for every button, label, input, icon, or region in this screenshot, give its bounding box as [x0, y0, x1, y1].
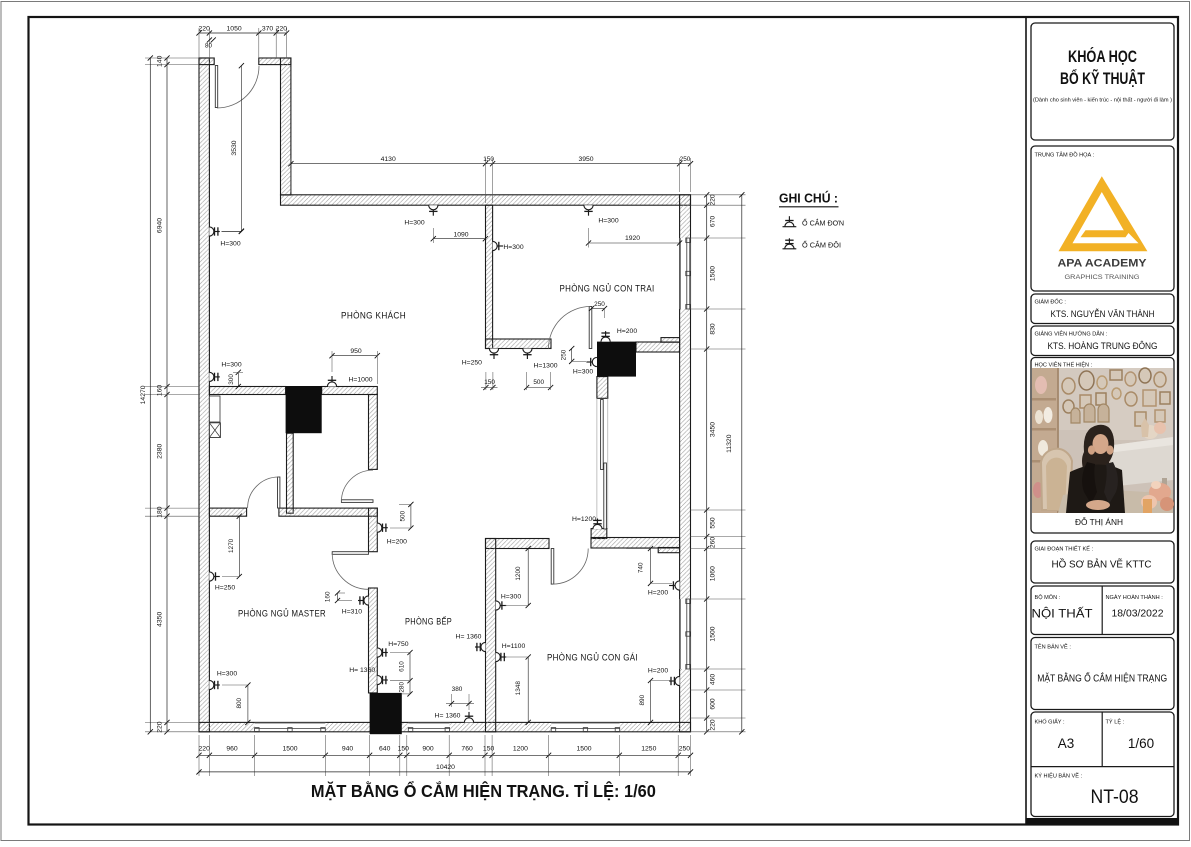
svg-text:220: 220 — [276, 26, 288, 33]
svg-text:KTS. HOÀNG TRUNG ĐÔNG: KTS. HOÀNG TRUNG ĐÔNG — [1048, 341, 1158, 351]
svg-text:1250: 1250 — [641, 746, 656, 753]
svg-text:H=200: H=200 — [387, 539, 407, 546]
svg-text:H=300: H=300 — [598, 218, 618, 225]
svg-text:830: 830 — [710, 323, 717, 335]
svg-text:H=300: H=300 — [220, 241, 240, 248]
svg-text:3450: 3450 — [710, 422, 717, 437]
svg-text:280: 280 — [399, 682, 406, 693]
svg-text:1/60: 1/60 — [1128, 736, 1154, 751]
svg-text:550: 550 — [710, 517, 717, 529]
svg-text:Ổ CẮM ĐƠN: Ổ CẮM ĐƠN — [802, 218, 844, 227]
svg-text:960: 960 — [226, 746, 238, 753]
svg-text:MẶT BẰNG Ổ CẮM HIỆN TRẠNG: MẶT BẰNG Ổ CẮM HIỆN TRẠNG — [1037, 672, 1167, 685]
svg-text:220: 220 — [157, 721, 164, 733]
svg-text:Ổ CẮM ĐÔI: Ổ CẮM ĐÔI — [802, 240, 841, 249]
svg-text:150: 150 — [483, 746, 495, 753]
svg-text:670: 670 — [710, 216, 717, 228]
svg-text:H=300: H=300 — [503, 244, 523, 251]
svg-text:PHÒNG KHÁCH: PHÒNG KHÁCH — [341, 310, 406, 321]
svg-text:H=300: H=300 — [404, 220, 424, 227]
svg-text:1060: 1060 — [710, 566, 717, 581]
svg-text:610: 610 — [399, 661, 406, 672]
svg-text:GIÁM ĐỐC :: GIÁM ĐỐC : — [1035, 299, 1067, 306]
svg-text:H=200: H=200 — [648, 590, 668, 597]
svg-text:H=300: H=300 — [573, 369, 593, 376]
svg-text:250: 250 — [560, 349, 567, 360]
svg-text:160: 160 — [325, 591, 332, 602]
svg-text:H=750: H=750 — [388, 641, 408, 648]
svg-text:GIẢNG VIÊN HƯỚNG DẪN :: GIẢNG VIÊN HƯỚNG DẪN : — [1035, 330, 1108, 338]
svg-text:PHÒNG NGỦ CON TRAI: PHÒNG NGỦ CON TRAI — [560, 283, 655, 294]
svg-text:1500: 1500 — [282, 746, 297, 753]
svg-text:150: 150 — [484, 379, 495, 386]
svg-text:KTS. NGUYỄN VĂN THÀNH: KTS. NGUYỄN VĂN THÀNH — [1051, 308, 1155, 319]
svg-text:640: 640 — [379, 746, 391, 753]
svg-text:H=310: H=310 — [342, 609, 362, 616]
svg-text:2380: 2380 — [157, 444, 164, 459]
svg-text:1920: 1920 — [625, 235, 640, 242]
svg-text:940: 940 — [342, 746, 354, 753]
svg-text:150: 150 — [398, 746, 410, 753]
svg-text:H=250: H=250 — [215, 585, 235, 592]
svg-text:500: 500 — [400, 510, 407, 521]
svg-text:HỒ SƠ BẢN VẼ KTTC: HỒ SƠ BẢN VẼ KTTC — [1052, 558, 1152, 571]
svg-text:H= 1360: H= 1360 — [435, 713, 461, 720]
svg-text:6940: 6940 — [157, 218, 164, 233]
svg-text:370: 370 — [262, 26, 274, 33]
svg-text:H=300: H=300 — [221, 362, 241, 369]
svg-text:11320: 11320 — [726, 434, 733, 453]
svg-text:180: 180 — [157, 506, 164, 518]
svg-text:890: 890 — [639, 694, 646, 705]
svg-text:600: 600 — [710, 698, 717, 710]
svg-text:(Dành cho sinh viên - kiến trú: (Dành cho sinh viên - kiến trúc - nội th… — [1033, 98, 1172, 104]
svg-text:PHÒNG NGỦ MASTER: PHÒNG NGỦ MASTER — [238, 608, 326, 619]
svg-text:1200: 1200 — [515, 566, 522, 581]
svg-text:1270: 1270 — [228, 538, 235, 553]
svg-text:H=300: H=300 — [501, 594, 521, 601]
svg-text:18/03/2022: 18/03/2022 — [1112, 609, 1164, 620]
svg-text:10420: 10420 — [436, 764, 455, 771]
svg-text:H=1200: H=1200 — [572, 516, 596, 523]
svg-text:3950: 3950 — [578, 156, 593, 163]
svg-text:TRUNG TÂM ĐỒ HỌA :: TRUNG TÂM ĐỒ HỌA : — [1035, 152, 1095, 159]
svg-text:TÊN BẢN VẼ :: TÊN BẢN VẼ : — [1035, 643, 1072, 651]
svg-text:800: 800 — [236, 697, 243, 708]
svg-text:140: 140 — [157, 55, 164, 67]
svg-text:KHỔ GIẤY :: KHỔ GIẤY : — [1035, 719, 1065, 726]
svg-text:14270: 14270 — [140, 385, 147, 404]
svg-text:H= 1360: H= 1360 — [456, 634, 482, 641]
svg-text:1050: 1050 — [227, 26, 242, 33]
svg-text:1090: 1090 — [453, 232, 468, 239]
svg-text:460: 460 — [710, 674, 717, 686]
svg-text:NỘI THẤT: NỘI THẤT — [1032, 606, 1094, 621]
svg-text:PHÒNG BẾP: PHÒNG BẾP — [405, 616, 452, 627]
svg-text:ĐỖ THỊ ÁNH: ĐỖ THỊ ÁNH — [1075, 516, 1123, 527]
svg-text:KÝ HIỆU BẢN VẼ :: KÝ HIỆU BẢN VẼ : — [1035, 772, 1083, 780]
svg-text:300: 300 — [228, 374, 235, 385]
svg-text:H=1300: H=1300 — [534, 363, 558, 370]
svg-text:150: 150 — [483, 156, 494, 163]
svg-text:220: 220 — [199, 746, 211, 753]
svg-text:1500: 1500 — [576, 746, 591, 753]
svg-text:H=1100: H=1100 — [502, 643, 526, 650]
svg-text:380: 380 — [452, 686, 463, 693]
svg-text:1348: 1348 — [515, 681, 522, 696]
svg-text:KHÓA HỌC: KHÓA HỌC — [1068, 47, 1137, 66]
svg-text:250: 250 — [680, 156, 691, 163]
svg-text:GIAI ĐOẠN THIẾT KẾ :: GIAI ĐOẠN THIẾT KẾ : — [1035, 546, 1094, 553]
svg-text:160: 160 — [157, 385, 164, 397]
svg-text:900: 900 — [422, 746, 434, 753]
svg-text:GRAPHICS TRAINING: GRAPHICS TRAINING — [1065, 274, 1140, 281]
svg-text:H=200: H=200 — [648, 668, 668, 675]
svg-text:PHÒNG NGỦ CON GÁI: PHÒNG NGỦ CON GÁI — [547, 652, 638, 663]
svg-text:3530: 3530 — [231, 140, 238, 155]
svg-text:HỌC VIÊN THỂ HIỆN :: HỌC VIÊN THỂ HIỆN : — [1035, 361, 1093, 369]
svg-text:H=300: H=300 — [217, 671, 237, 678]
svg-text:220: 220 — [199, 26, 211, 33]
svg-text:A3: A3 — [1058, 736, 1075, 751]
svg-text:80: 80 — [205, 43, 212, 50]
svg-text:260: 260 — [710, 537, 717, 549]
svg-text:H=250: H=250 — [462, 360, 482, 367]
svg-text:GHI CHÚ :: GHI CHÚ : — [779, 191, 838, 206]
svg-text:250: 250 — [679, 746, 691, 753]
svg-text:1500: 1500 — [710, 626, 717, 641]
svg-text:1500: 1500 — [710, 266, 717, 281]
svg-text:TỶ LỆ :: TỶ LỆ : — [1106, 718, 1125, 726]
svg-text:APA ACADEMY: APA ACADEMY — [1058, 258, 1148, 270]
svg-text:NGÀY HOÀN THÀNH :: NGÀY HOÀN THÀNH : — [1106, 594, 1164, 601]
svg-text:H= 1360: H= 1360 — [349, 667, 375, 674]
svg-text:H=1000: H=1000 — [349, 377, 373, 384]
svg-text:BỘ MÔN :: BỘ MÔN : — [1035, 594, 1061, 601]
svg-text:220: 220 — [710, 719, 717, 731]
svg-text:4350: 4350 — [157, 612, 164, 627]
svg-text:250: 250 — [594, 301, 605, 308]
svg-text:NT-08: NT-08 — [1091, 786, 1139, 808]
svg-text:4130: 4130 — [381, 156, 396, 163]
svg-text:950: 950 — [350, 348, 362, 355]
svg-text:MẶT BẰNG Ổ CẮM HIỆN TRẠNG. TỈ: MẶT BẰNG Ổ CẮM HIỆN TRẠNG. TỈ LỆ: 1/60 — [311, 780, 656, 801]
svg-text:740: 740 — [638, 562, 645, 573]
svg-text:760: 760 — [461, 746, 473, 753]
svg-text:500: 500 — [533, 379, 544, 386]
svg-text:220: 220 — [710, 194, 717, 206]
svg-text:BỔ KỸ THUẬT: BỔ KỸ THUẬT — [1060, 68, 1145, 88]
svg-text:H=200: H=200 — [617, 328, 637, 335]
svg-text:1200: 1200 — [513, 746, 528, 753]
